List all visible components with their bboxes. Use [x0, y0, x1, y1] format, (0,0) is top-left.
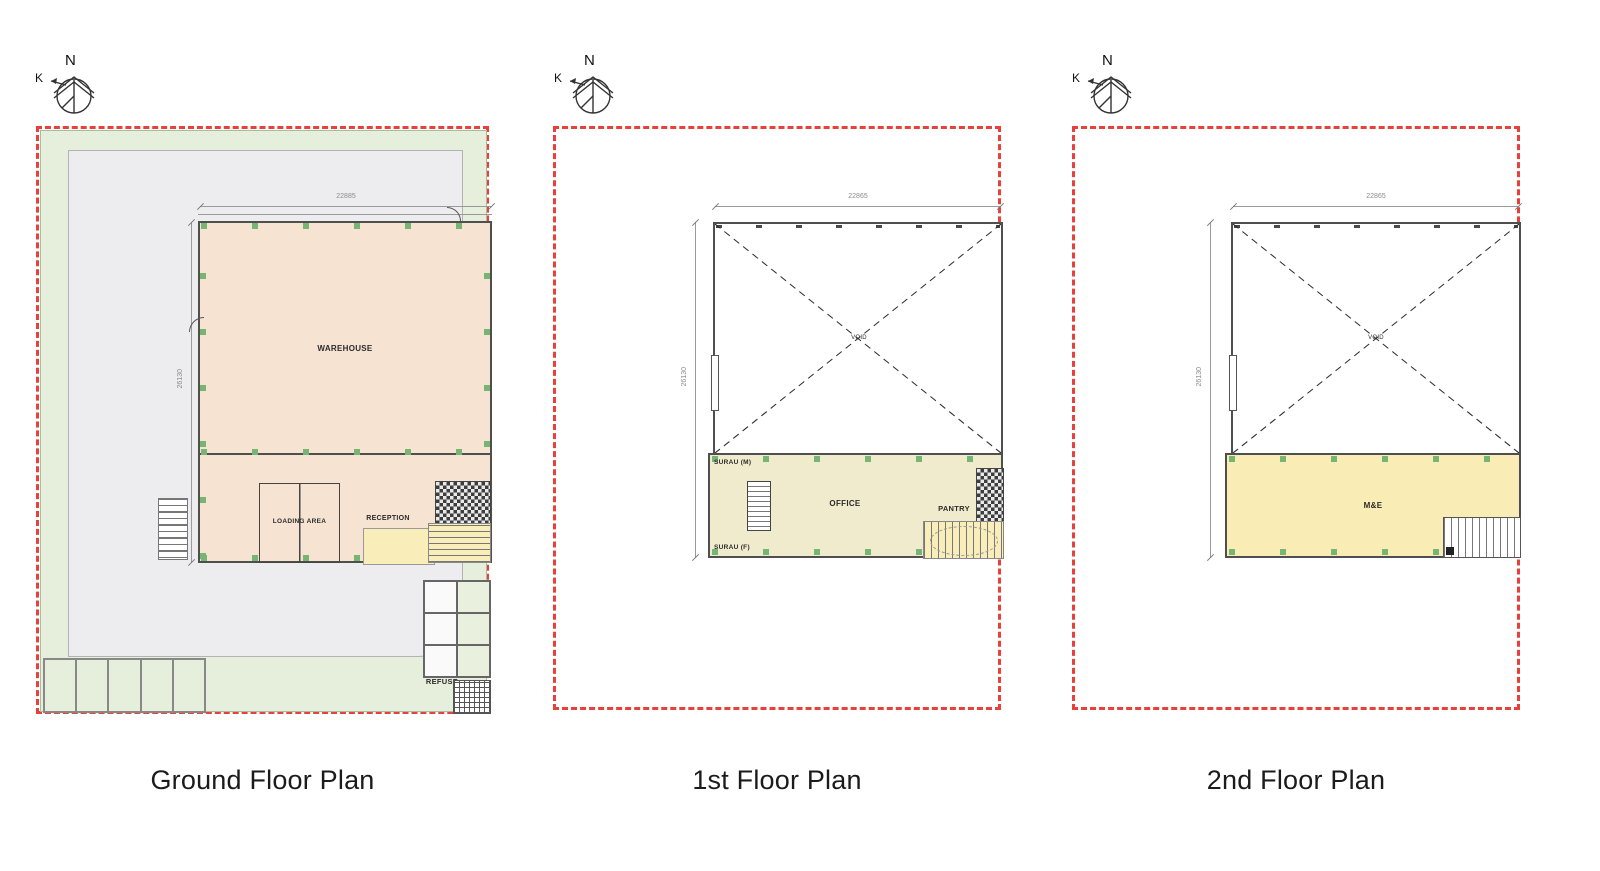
- parking-bay: [44, 659, 76, 712]
- compass-k-label: K: [1072, 71, 1080, 85]
- me-floor: M&E: [1225, 453, 1521, 558]
- parking-bay: [457, 645, 490, 677]
- louver-window: [1229, 355, 1237, 411]
- ground-floor-title: Ground Floor Plan: [36, 765, 489, 796]
- compass-k-label: K: [554, 71, 562, 85]
- column-markers: [200, 225, 206, 559]
- external-steps: [158, 498, 188, 560]
- warehouse-label: WAREHOUSE: [198, 344, 492, 353]
- dimension-tick: [488, 203, 495, 210]
- office-floor: SURAU (M) SURAU (F) OFFICE PANTRY: [708, 453, 1003, 558]
- parking-stalls: [43, 658, 206, 713]
- compass-north-label: N: [584, 52, 595, 69]
- column-markers: [1229, 456, 1519, 462]
- stair-walkline: [930, 526, 998, 556]
- dimension-tick: [692, 554, 699, 561]
- dimension-depth-label: 26130: [681, 367, 688, 386]
- parking-bay: [76, 659, 108, 712]
- first-floor-site-boundary: 22865 26130 VOID SURAU (M) SURAU (F) OFF…: [553, 126, 1001, 710]
- void-label: VOID: [839, 335, 879, 341]
- stair-landing-mark: [1446, 547, 1454, 555]
- north-compass: N K: [553, 56, 629, 118]
- void-label: VOID: [1356, 335, 1396, 341]
- stair-shaft: [747, 481, 771, 531]
- column-markers: [201, 449, 489, 455]
- loading-area-label: LOADING AREA: [259, 518, 340, 525]
- dimension-line-depth: [191, 222, 192, 563]
- compass-north-label: N: [1102, 52, 1113, 69]
- dimension-width-label: 22865: [715, 193, 1001, 200]
- column-markers: [201, 223, 489, 229]
- north-compass: N K: [1071, 56, 1147, 118]
- dimension-line-depth: [1210, 222, 1211, 558]
- louver-window: [711, 355, 719, 411]
- staircase: [1443, 517, 1521, 558]
- ground-floor-site-boundary: 22885 26130 WAREHOUSE LOADING AREA RECEP…: [36, 126, 489, 714]
- dimension-tick: [1515, 203, 1522, 210]
- office-label: OFFICE: [800, 499, 890, 508]
- first-floor-title: 1st Floor Plan: [553, 765, 1001, 796]
- me-label: M&E: [1227, 501, 1519, 510]
- dimension-line-depth: [695, 222, 696, 558]
- dimension-depth-label: 26130: [1196, 367, 1203, 386]
- compass-north-label: N: [65, 52, 76, 69]
- parking-bay: [457, 581, 490, 613]
- staircase: [428, 523, 491, 563]
- parking-bay: [457, 613, 490, 645]
- parking-bay: [173, 659, 205, 712]
- parking-bay: [424, 613, 457, 645]
- floor-plans-sheet: N K N K N K: [0, 0, 1600, 871]
- parking-grid: [423, 580, 491, 678]
- parking-bay: [424, 645, 457, 677]
- parking-bay: [108, 659, 140, 712]
- staircase: [923, 521, 1004, 559]
- parking-bay: [141, 659, 173, 712]
- second-floor-site-boundary: 22865 26130 VOID M&E: [1072, 126, 1520, 710]
- refuse-area: [453, 680, 491, 714]
- column-markers: [712, 456, 1001, 462]
- toilet-block: [435, 481, 491, 529]
- compass-k-label: K: [35, 71, 43, 85]
- pantry-label: PANTRY: [926, 504, 982, 513]
- reception-label: RECEPTION: [355, 515, 421, 522]
- dimension-width-label: 22865: [1233, 193, 1519, 200]
- north-compass: N K: [34, 56, 110, 118]
- surau-f-label: SURAU (F): [714, 544, 750, 551]
- reception-lobby: [363, 528, 435, 565]
- second-floor-title: 2nd Floor Plan: [1072, 765, 1520, 796]
- surau-m-label: SURAU (M): [714, 459, 751, 466]
- dimension-line-width: [1233, 206, 1519, 207]
- dimension-depth-label: 26130: [177, 369, 184, 388]
- dimension-width-label: 22885: [200, 193, 492, 200]
- parking-bay: [424, 581, 457, 613]
- dimension-tick: [997, 203, 1004, 210]
- dimension-tick: [1207, 554, 1214, 561]
- dimension-line-width: [715, 206, 1001, 207]
